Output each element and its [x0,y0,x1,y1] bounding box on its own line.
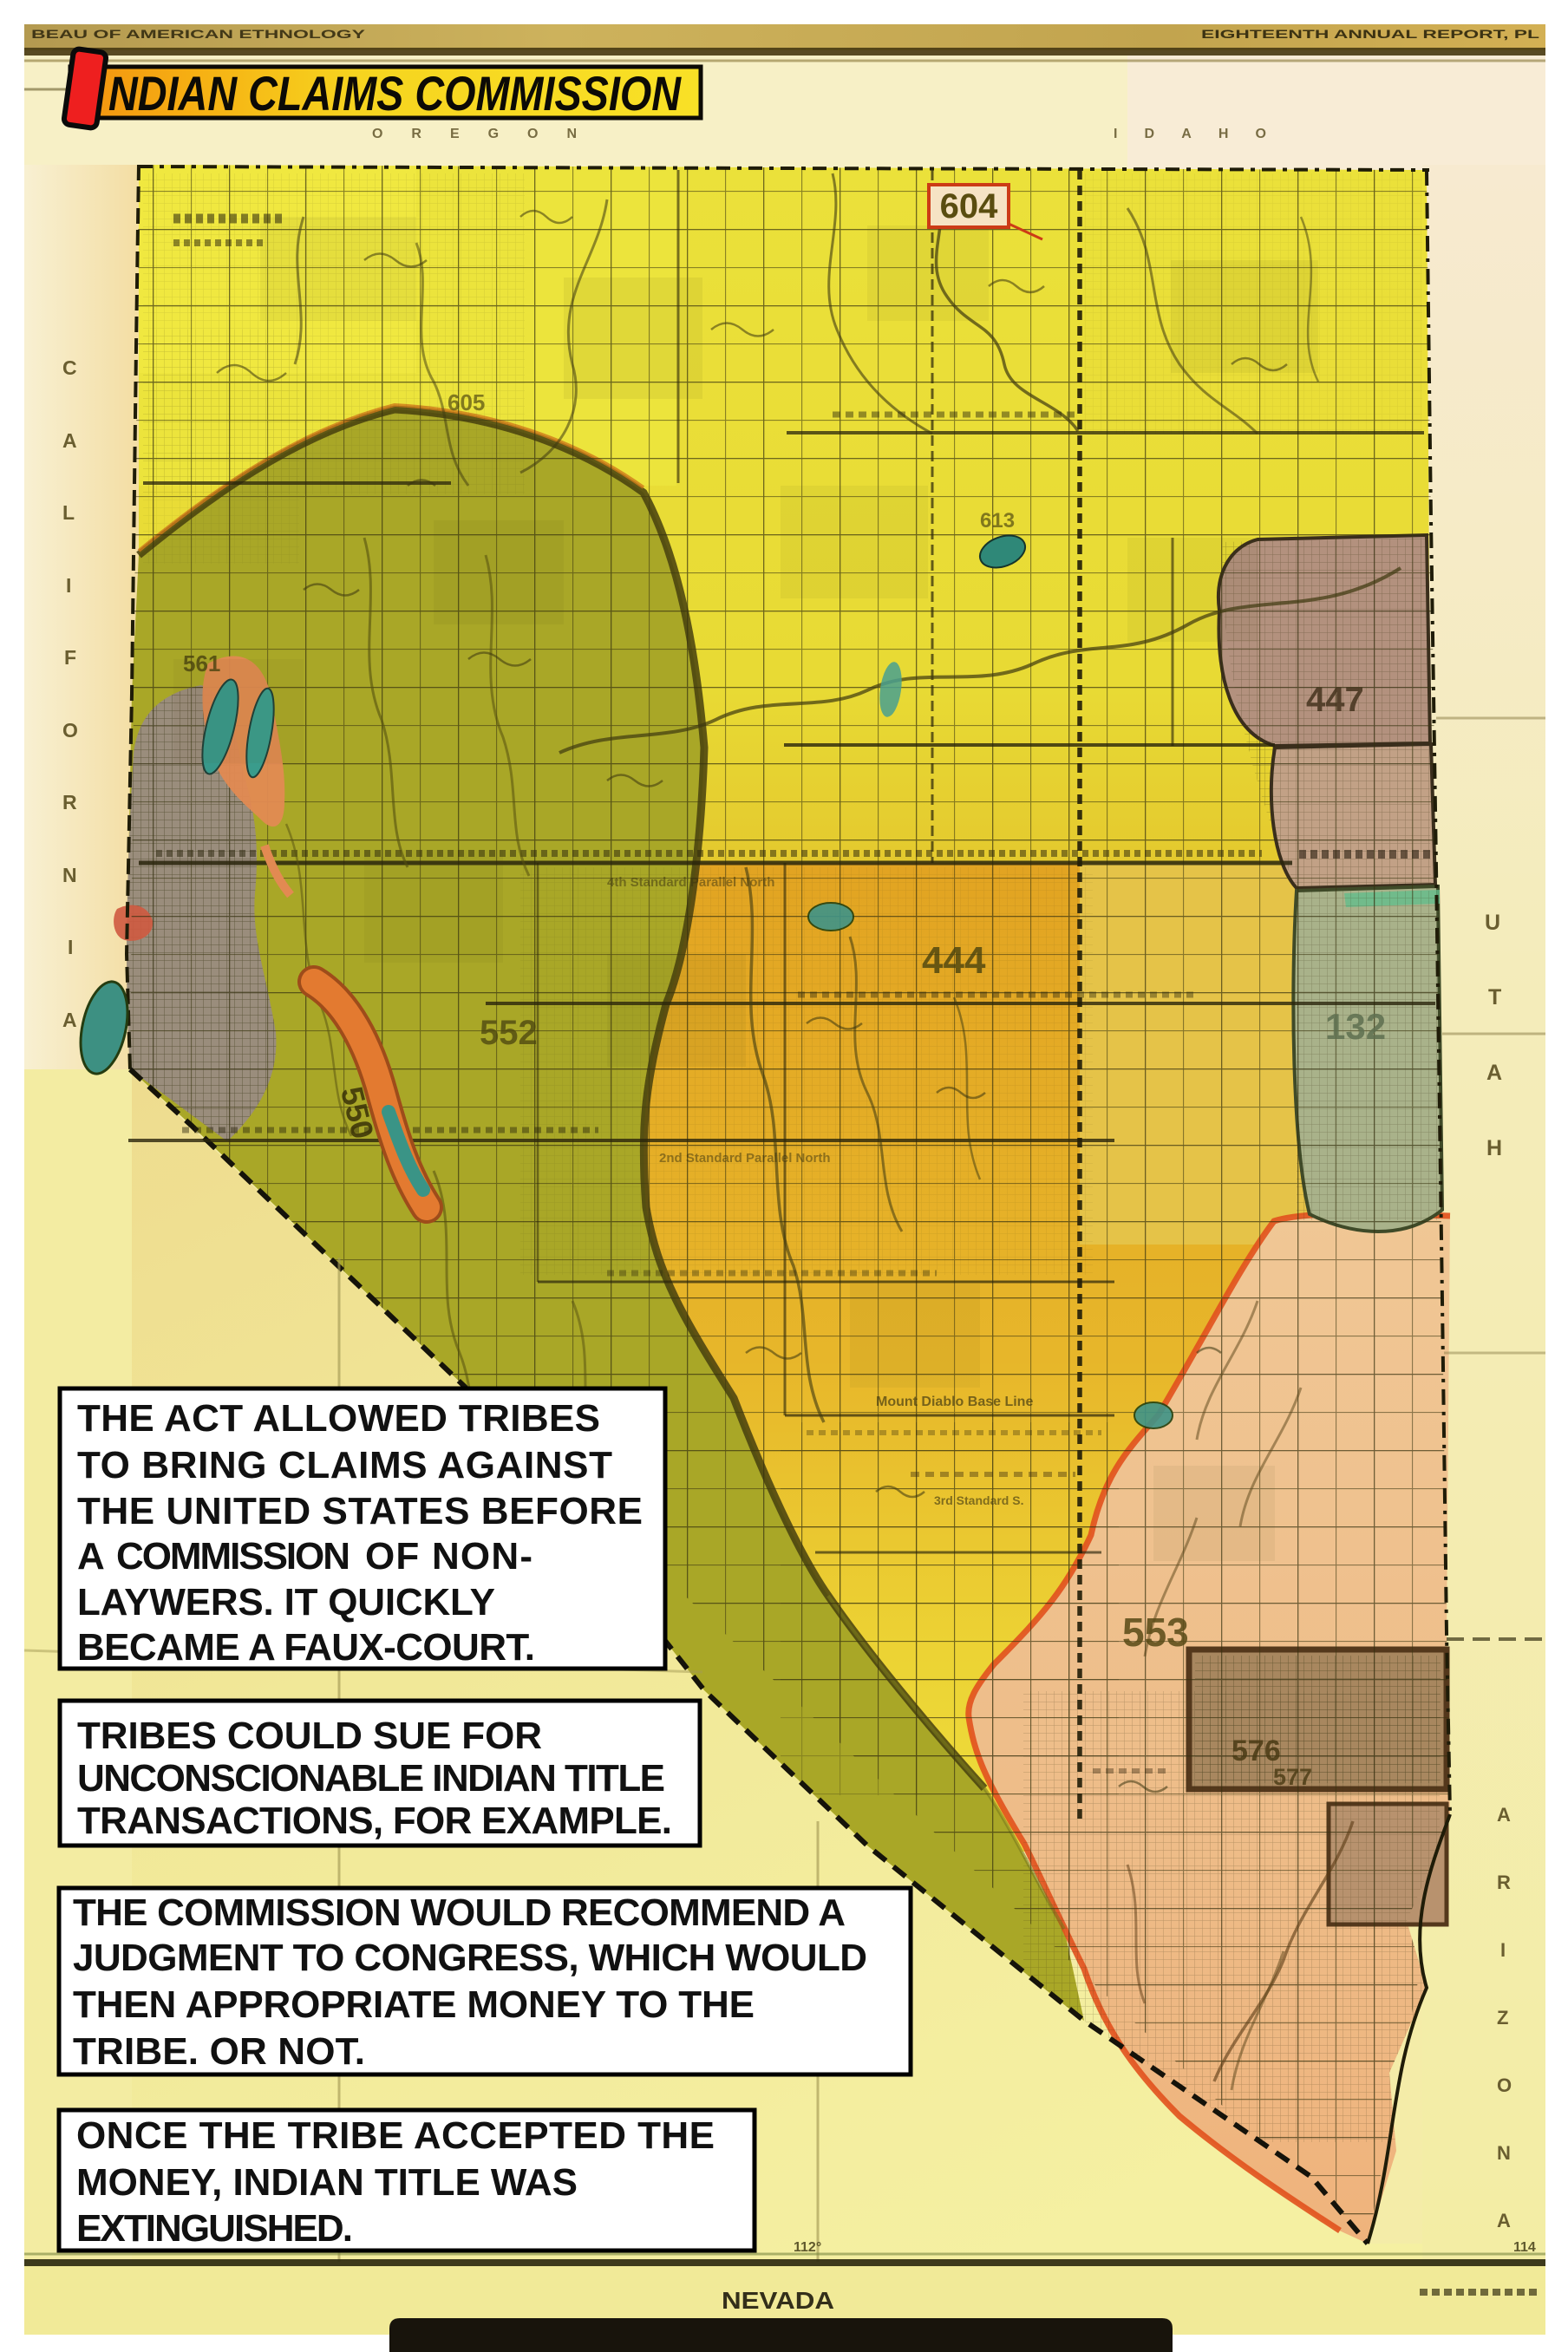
svg-text:JUDGMENT TO CONGRESS, WHICH WO: JUDGMENT TO CONGRESS, WHICH WOULD [73,1937,867,1979]
svg-text:A: A [1497,1804,1511,1826]
svg-text:O: O [62,719,78,742]
svg-text:553: 553 [1122,1610,1189,1655]
svg-text:TRIBE. OR NOT.: TRIBE. OR NOT. [73,2030,365,2073]
svg-text:447: 447 [1306,681,1364,719]
svg-text:LAYWERS. IT QUICKLY: LAYWERS. IT QUICKLY [77,1581,495,1624]
svg-text:I: I [66,574,71,597]
svg-text:A: A [62,1009,77,1031]
svg-text:EXTINGUISHED.: EXTINGUISHED. [76,2207,353,2250]
svg-text:H: H [1486,1136,1502,1160]
svg-text:U: U [1485,911,1500,935]
svg-text:NEVADA: NEVADA [722,2287,834,2314]
svg-text:R: R [62,791,77,813]
svg-text:BECAME A FAUX-COURT.: BECAME A FAUX-COURT. [77,1626,535,1669]
svg-text:577: 577 [1273,1764,1312,1790]
svg-text:Z: Z [1497,2007,1508,2029]
svg-text:3rd Standard S.: 3rd Standard S. [934,1493,1023,1507]
svg-text:OF NON-: OF NON- [365,1535,532,1578]
svg-text:613: 613 [980,509,1015,532]
svg-text:TO BRING CLAIMS AGAINST: TO BRING CLAIMS AGAINST [77,1444,612,1486]
svg-text:4th Standard Parallel North: 4th Standard Parallel North [607,875,774,890]
svg-text:Mount Diablo Base Line: Mount Diablo Base Line [876,1395,1033,1409]
svg-text:MONEY, INDIAN TITLE WAS: MONEY, INDIAN TITLE WAS [76,2161,578,2204]
svg-text:2nd Standard Parallel North: 2nd Standard Parallel North [659,1151,831,1166]
svg-text:561: 561 [183,650,220,676]
svg-text:TRIBES COULD SUE FOR: TRIBES COULD SUE FOR [77,1715,542,1757]
svg-text:552: 552 [480,1014,538,1052]
svg-text:TRANSACTIONS, FOR EXAMPLE.: TRANSACTIONS, FOR EXAMPLE. [77,1800,672,1842]
svg-text:F: F [64,646,76,669]
svg-text:BEAU OF AMERICAN ETHNOLOGY: BEAU OF AMERICAN ETHNOLOGY [31,27,366,41]
svg-text:THE UNITED STATES BEFORE: THE UNITED STATES BEFORE [77,1490,643,1532]
svg-text:444: 444 [922,939,986,982]
svg-text:ONCE THE TRIBE ACCEPTED THE: ONCE THE TRIBE ACCEPTED THE [76,2114,715,2157]
svg-text:T: T [1488,985,1501,1009]
svg-text:114: 114 [1513,2240,1536,2255]
svg-text:A: A [77,1535,105,1578]
svg-text:THE COMMISSION WOULD RECOMMEND: THE COMMISSION WOULD RECOMMEND A [73,1891,846,1934]
svg-text:R: R [1497,1872,1511,1893]
svg-text:576: 576 [1232,1735,1281,1767]
svg-text:COMMISSION: COMMISSION [116,1535,350,1578]
svg-text:604: 604 [940,187,998,225]
svg-text:132: 132 [1325,1006,1386,1047]
svg-text:605: 605 [448,389,485,415]
svg-text:UNCONSCIONABLE INDIAN TITLE: UNCONSCIONABLE INDIAN TITLE [77,1757,665,1800]
svg-text:A: A [1497,2210,1511,2231]
svg-text:N: N [1497,2142,1511,2164]
svg-text:THE ACT ALLOWED TRIBES: THE ACT ALLOWED TRIBES [77,1397,600,1440]
svg-text:THEN APPROPRIATE MONEY TO THE: THEN APPROPRIATE MONEY TO THE [73,1983,755,2026]
svg-text:NDIAN CLAIMS COMMISSION: NDIAN CLAIMS COMMISSION [108,66,682,121]
svg-text:EIGHTEENTH ANNUAL REPORT, PL: EIGHTEENTH ANNUAL REPORT, PL [1201,27,1540,41]
svg-text:A: A [1486,1061,1502,1085]
svg-text:112°: 112° [794,2240,821,2255]
svg-text:A: A [62,429,77,452]
svg-text:N: N [62,864,77,886]
svg-text:L: L [62,501,75,524]
svg-text:O: O [1497,2074,1512,2096]
svg-text:C: C [62,356,77,379]
svg-text:I: I [68,936,73,958]
svg-text:I: I [1500,1939,1506,1961]
